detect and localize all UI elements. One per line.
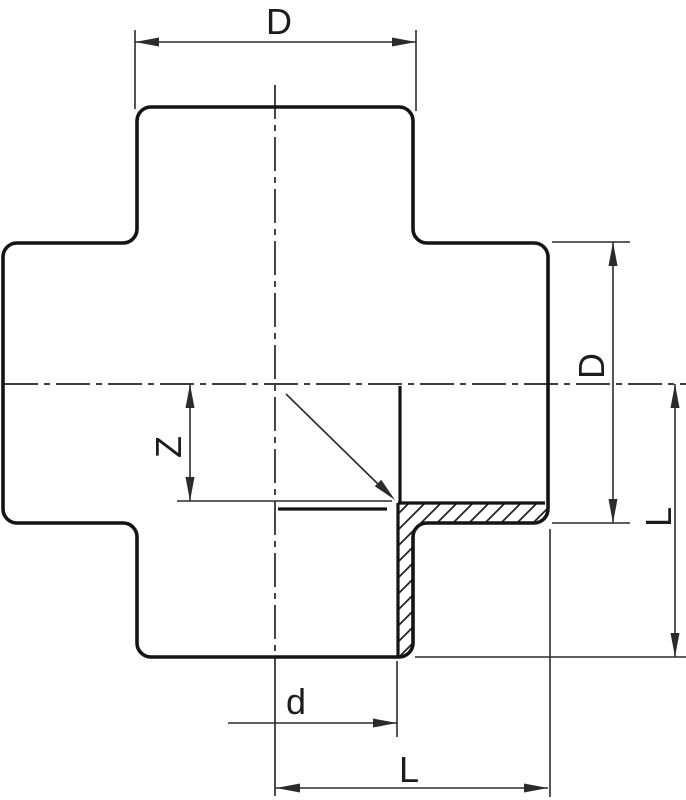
arrow-down-icon	[609, 499, 618, 523]
dim-label-length-bottom: L	[399, 749, 419, 790]
arrow-right-icon	[524, 784, 548, 793]
dim-label-length-right: L	[638, 507, 679, 527]
arrow-left-icon	[276, 784, 300, 793]
leader-line	[286, 394, 380, 486]
arrow-up-icon	[671, 384, 680, 408]
dim-label-outer-diameter-top: D	[266, 1, 292, 42]
drawing-canvas: D D L Z d L	[0, 0, 686, 800]
arrow-up-icon	[186, 384, 195, 408]
arrow-down-icon	[186, 477, 195, 501]
dim-label-outer-diameter-right: D	[571, 353, 612, 379]
technical-drawing: D D L Z d L	[0, 0, 686, 800]
dim-label-inner-diameter: d	[286, 681, 306, 722]
dim-label-insertion-depth: Z	[148, 436, 189, 458]
arrow-right-icon	[373, 719, 397, 728]
arrow-left-icon	[135, 38, 159, 47]
arrow-right-icon	[392, 38, 416, 47]
arrow-up-icon	[609, 242, 618, 266]
arrow-down-icon	[671, 633, 680, 657]
